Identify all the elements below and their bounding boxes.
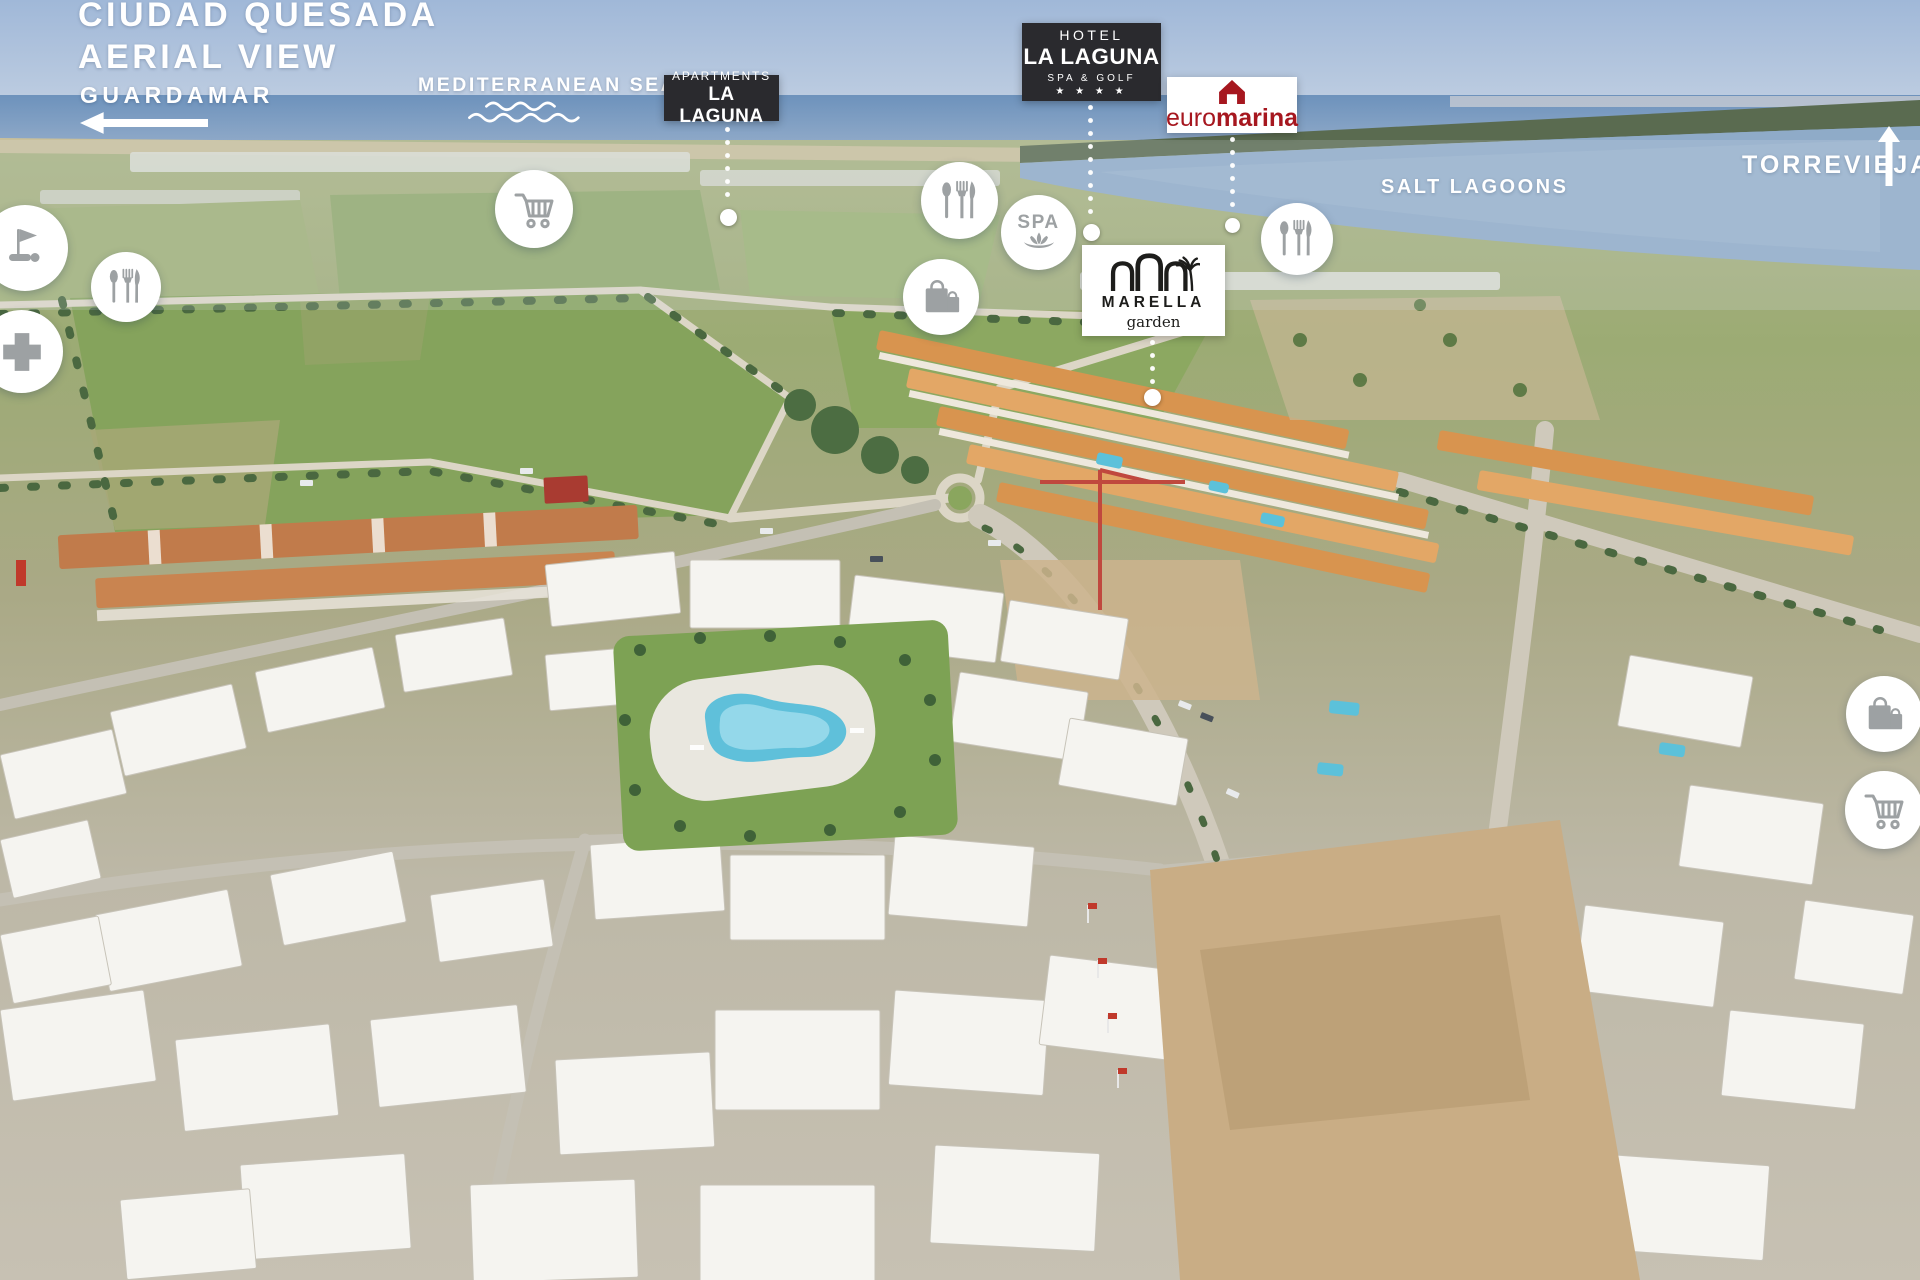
shopping-cart-icon	[511, 186, 557, 232]
aerial-view-page: CIUDAD QUESADA AERIAL VIEW GUARDAMAR MED…	[0, 0, 1920, 1280]
marella-marker-dot	[1144, 389, 1161, 406]
left-arrow-icon	[80, 112, 208, 134]
restaurant-icon	[1276, 218, 1318, 260]
title-line-2: AERIAL VIEW	[78, 36, 439, 78]
salt-lagoons-label: SALT LAGOONS	[1381, 176, 1568, 199]
spa-label: SPA	[1017, 213, 1059, 232]
up-arrow-icon	[1878, 126, 1900, 186]
badge-apartments-la-laguna: APARTMENTS LA LAGUNA	[664, 75, 779, 121]
hotel-line1: HOTEL	[1059, 27, 1123, 43]
badge-euromarina: euromarina	[1167, 77, 1297, 133]
restaurant-icon	[106, 267, 146, 307]
poi-spa: SPA	[1001, 195, 1076, 270]
apartments-line2: LA LAGUNA	[664, 84, 779, 128]
poi-restaurant-mid	[921, 162, 998, 239]
marella-marker-line	[1150, 336, 1155, 384]
poi-supermarket-top	[495, 170, 573, 248]
shopping-bag-icon	[1863, 693, 1905, 735]
spa-lotus-icon	[1022, 232, 1056, 252]
poi-shopping-right	[1846, 676, 1920, 752]
hotel-marker-dot	[1083, 224, 1100, 241]
medical-cross-icon	[0, 329, 45, 375]
marella-name: MARELLA	[1102, 294, 1206, 312]
poi-supermarket-right	[1845, 771, 1920, 849]
euromarina-word-light: euro	[1166, 104, 1216, 132]
apartments-line1: APARTMENTS	[672, 69, 771, 83]
euromarina-word-bold: marina	[1216, 104, 1298, 132]
mediterranean-sea-label: MEDITERRANEAN SEA	[418, 74, 632, 97]
apartments-marker-dot	[720, 209, 737, 226]
euromarina-marker-dot	[1225, 218, 1240, 233]
apartments-marker-line	[725, 123, 730, 205]
poi-restaurant-right	[1261, 203, 1333, 275]
marella-subtitle: garden	[1127, 313, 1181, 331]
hotel-stars: ★ ★ ★ ★	[1055, 86, 1127, 97]
euromarina-marker-line	[1230, 133, 1235, 213]
badge-hotel-la-laguna: HOTEL LA LAGUNA SPA & GOLF ★ ★ ★ ★	[1022, 23, 1161, 101]
direction-guardamar-label: GUARDAMAR	[80, 82, 274, 109]
arches-palm-icon	[1108, 251, 1200, 291]
hotel-marker-line	[1088, 101, 1093, 220]
poi-shopping-mid	[903, 259, 979, 335]
hotel-line3: SPA & GOLF	[1047, 73, 1135, 84]
golf-flag-icon	[1, 224, 49, 272]
shopping-cart-icon	[1861, 787, 1907, 833]
restaurant-icon	[938, 179, 982, 223]
shopping-bag-icon	[920, 276, 962, 318]
page-title: CIUDAD QUESADA AERIAL VIEW	[78, 0, 439, 78]
title-line-1: CIUDAD QUESADA	[78, 0, 439, 36]
euromarina-wordmark: euromarina	[1166, 106, 1298, 131]
hotel-line2: LA LAGUNA	[1023, 44, 1159, 70]
waves-icon	[466, 99, 584, 125]
badge-marella-garden: MARELLA garden	[1082, 245, 1225, 336]
house-icon	[1219, 80, 1245, 104]
poi-restaurant-left	[91, 252, 161, 322]
